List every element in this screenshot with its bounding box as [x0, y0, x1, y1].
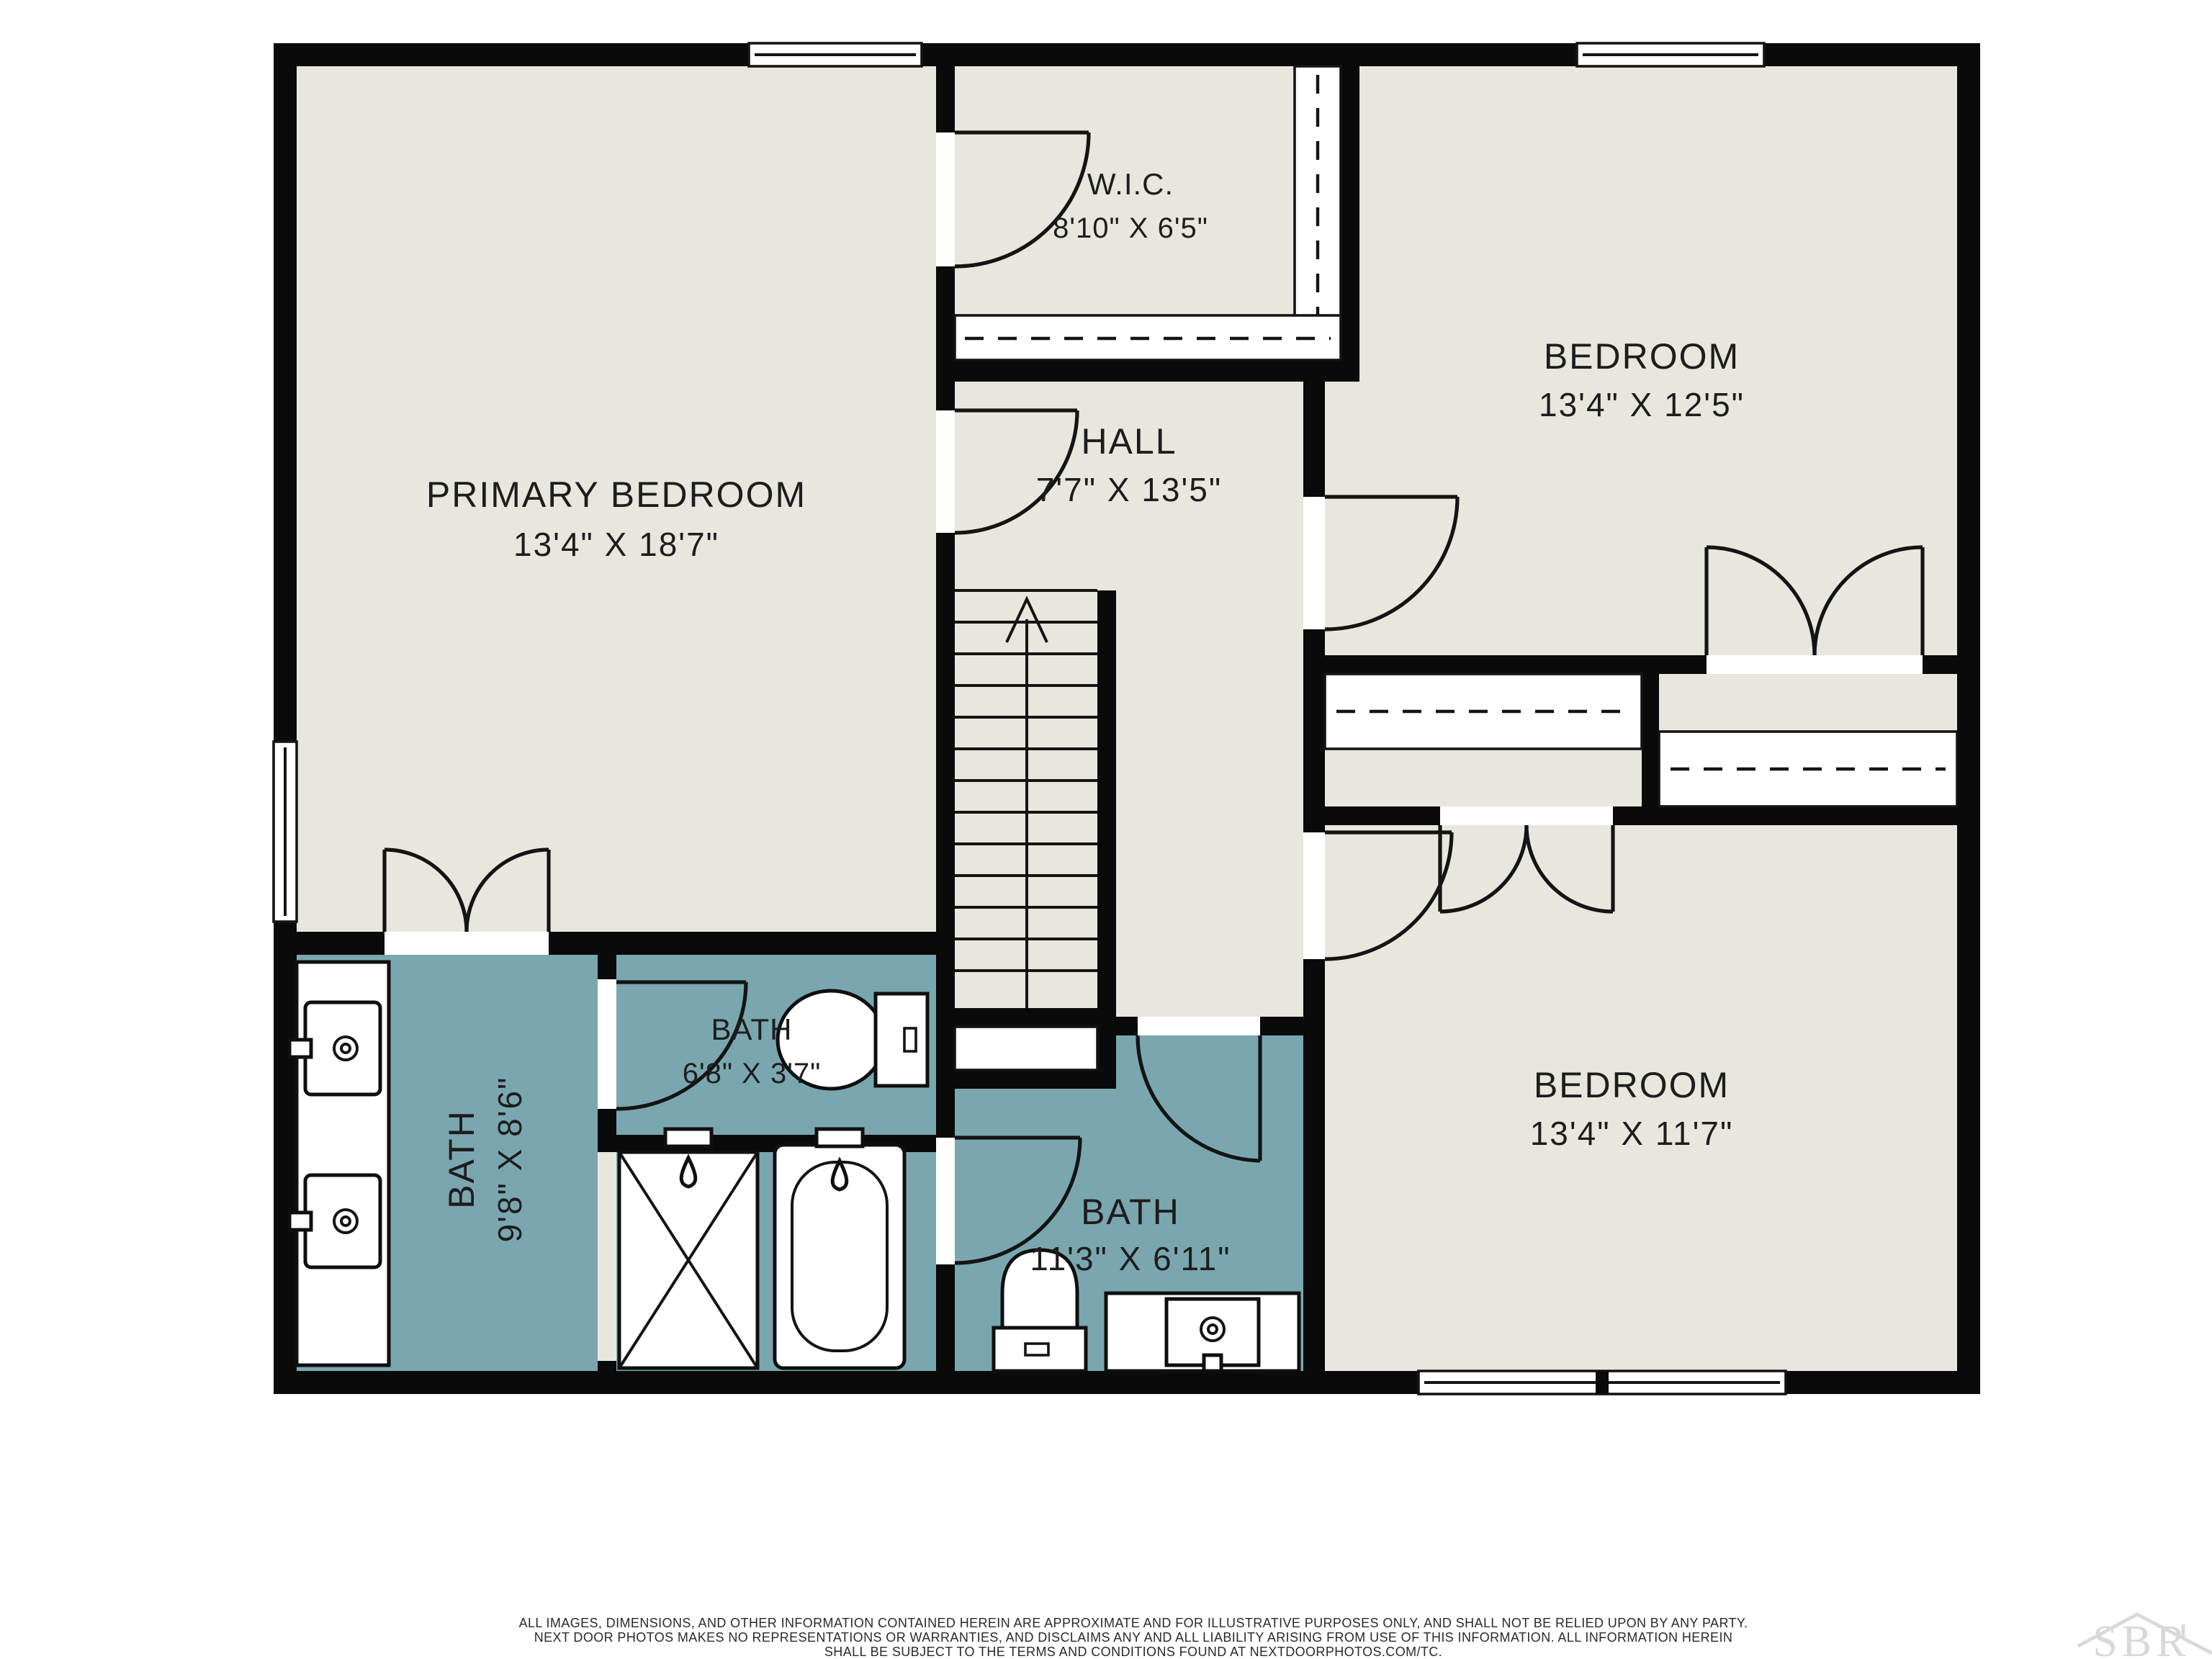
small-bath-dims: 6'8" X 3'7" — [683, 1058, 822, 1089]
primary-bedroom-label: PRIMARY BEDROOM — [426, 475, 806, 515]
bedroom-lower-dims: 13'4" X 11'7" — [1530, 1115, 1734, 1152]
floor-plan: PRIMARY BEDROOM 13'4" X 18'7" W.I.C. 8'1… — [0, 0, 2212, 1659]
bedroom-lower-label: BEDROOM — [1534, 1065, 1730, 1105]
primary-bath-dims: 9'8" X 8'6" — [491, 1076, 529, 1243]
bedroom-upper-dims: 13'4" X 12'5" — [1539, 386, 1745, 423]
disclaimer: ALL IMAGES, DIMENSIONS, AND OTHER INFORM… — [519, 1616, 1748, 1659]
hall-bath-label: BATH — [1081, 1192, 1180, 1232]
wic-dims: 8'10" X 6'5" — [1053, 212, 1208, 244]
disclaimer-line-1: ALL IMAGES, DIMENSIONS, AND OTHER INFORM… — [519, 1616, 1748, 1630]
primary-bedroom-dims: 13'4" X 18'7" — [513, 526, 719, 563]
stair-void — [955, 1027, 1097, 1070]
window-left — [274, 742, 297, 922]
window-top-left — [749, 43, 922, 66]
shower — [619, 1129, 757, 1368]
hall-bath-dims: 11'3" X 6'11" — [1030, 1240, 1231, 1277]
disclaimer-line-3: SHALL BE SUBJECT TO THE TERMS AND CONDIT… — [824, 1645, 1442, 1659]
window-top-right — [1577, 43, 1764, 66]
primary-bath-label: BATH — [441, 1110, 482, 1209]
small-bath-label: BATH — [711, 1012, 793, 1046]
plan: PRIMARY BEDROOM 13'4" X 18'7" W.I.C. 8'1… — [274, 43, 1980, 1394]
logo-text: SBR — [2092, 1617, 2190, 1659]
primary-bath-vanity — [289, 962, 389, 1365]
watermark-logo: SBR — [2078, 1614, 2212, 1659]
bedroom-upper-label: BEDROOM — [1544, 336, 1740, 377]
bathtub — [775, 1129, 904, 1368]
hall-bath-floor-upper — [1116, 1035, 1303, 1100]
shower-valve-icon — [665, 1129, 711, 1146]
tub-valve-icon — [817, 1129, 863, 1146]
hall-dims: 7'7" X 13'5" — [1036, 471, 1222, 508]
hall-bath-vanity — [1106, 1293, 1299, 1371]
window-bottom-double — [1419, 1371, 1786, 1394]
hall-label: HALL — [1081, 421, 1177, 462]
disclaimer-line-2: NEXT DOOR PHOTOS MAKES NO REPRESENTATION… — [534, 1630, 1733, 1645]
wic-label: W.I.C. — [1087, 167, 1174, 201]
sink-faucet-icon — [289, 1040, 311, 1057]
sink-faucet-icon — [289, 1213, 311, 1230]
sink-faucet-icon — [1204, 1355, 1221, 1371]
